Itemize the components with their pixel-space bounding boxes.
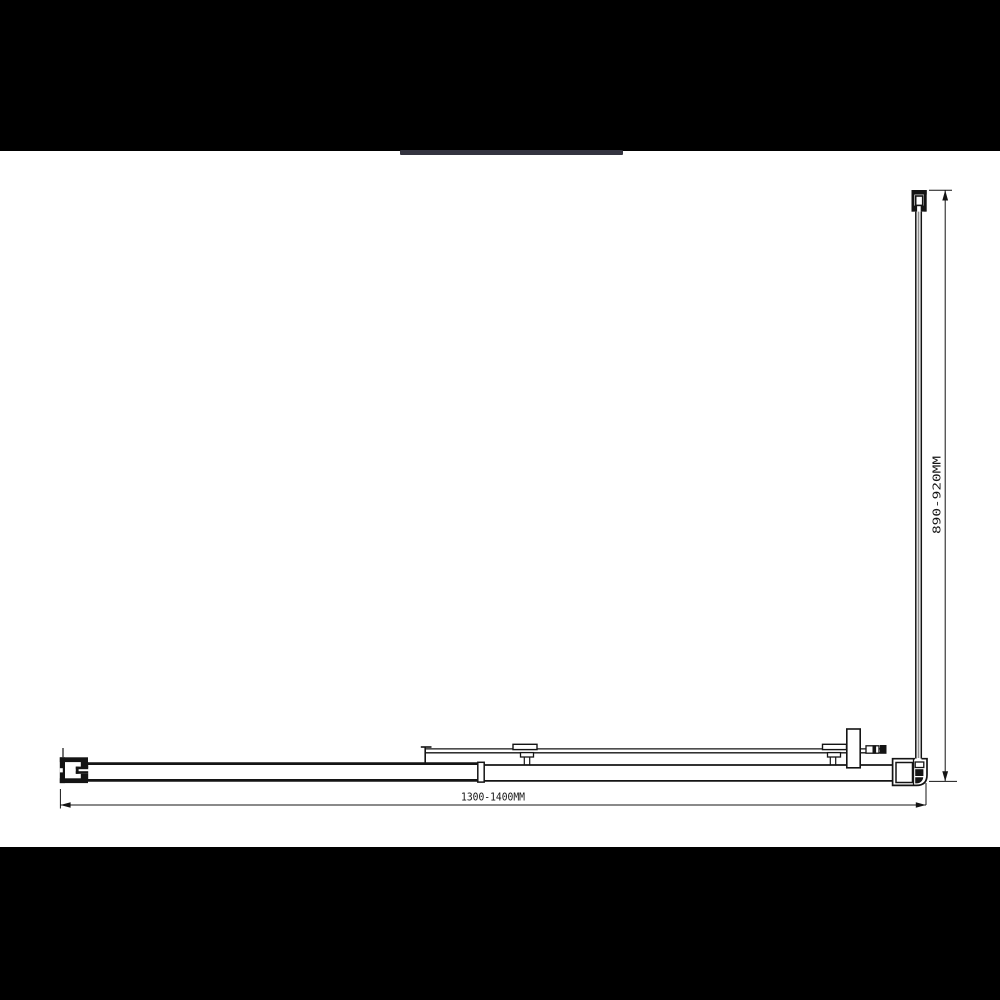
depth-dimension: 890-920MM xyxy=(929,190,957,781)
technical-drawing: 890-920MM 1300-1400MM xyxy=(0,0,1000,1000)
width-dimension: 1300-1400MM xyxy=(60,783,926,809)
corner-bracket xyxy=(893,759,927,786)
right-panel-glass xyxy=(912,190,927,759)
door-end-stopper xyxy=(866,745,887,754)
roller-left xyxy=(513,744,537,765)
roller-right xyxy=(823,744,847,765)
photo-canvas: 890-920MM 1300-1400MM xyxy=(0,0,1000,1000)
guide-block xyxy=(847,729,860,768)
depth-dimension-label: 890-920MM xyxy=(931,456,944,534)
sliding-door-panel xyxy=(421,747,886,765)
width-dimension-label: 1300-1400MM xyxy=(461,791,525,804)
